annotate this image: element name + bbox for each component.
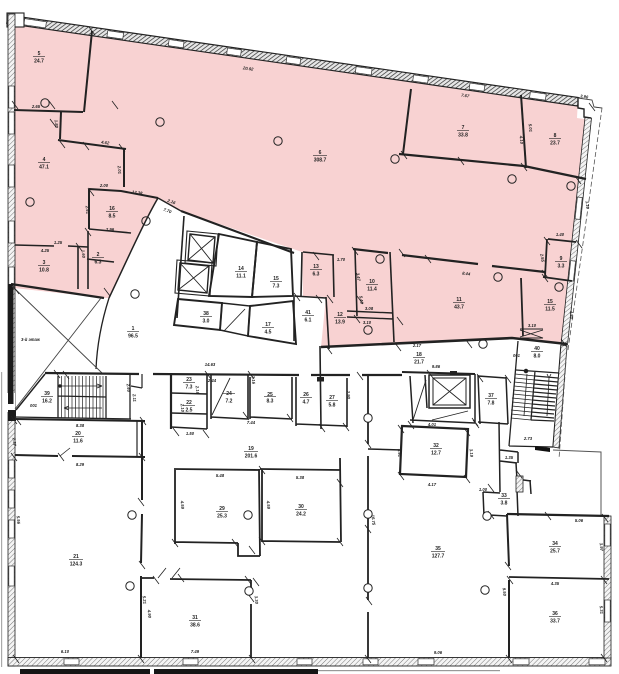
svg-text:1: 1 <box>132 326 135 332</box>
svg-text:9.86: 9.86 <box>432 364 441 369</box>
svg-text:10.8: 10.8 <box>39 268 49 274</box>
svg-text:24: 24 <box>226 391 232 397</box>
svg-text:1.80: 1.80 <box>54 120 60 129</box>
svg-text:33.7: 33.7 <box>550 619 560 625</box>
svg-text:14: 14 <box>238 266 244 272</box>
svg-text:4.80: 4.80 <box>568 310 574 320</box>
svg-text:3.08: 3.08 <box>365 306 374 311</box>
svg-text:7.3: 7.3 <box>186 385 193 391</box>
svg-text:201.6: 201.6 <box>245 454 258 460</box>
svg-text:3-й этаж: 3-й этаж <box>21 337 41 342</box>
svg-text:3.91: 3.91 <box>397 449 403 458</box>
svg-text:20: 20 <box>75 431 81 437</box>
svg-text:2.40: 2.40 <box>126 383 132 393</box>
svg-text:37: 37 <box>488 393 494 399</box>
svg-text:43.7: 43.7 <box>454 305 464 311</box>
svg-text:4.35: 4.35 <box>550 581 560 586</box>
svg-text:4.90: 4.90 <box>147 609 153 619</box>
svg-text:11.6: 11.6 <box>73 439 83 445</box>
svg-text:13.9: 13.9 <box>335 320 345 326</box>
svg-text:6: 6 <box>319 150 322 156</box>
svg-text:5.31: 5.31 <box>599 606 605 615</box>
svg-text:1.25: 1.25 <box>54 240 63 245</box>
svg-text:11.1: 11.1 <box>236 274 246 280</box>
svg-text:38.6: 38.6 <box>190 623 200 629</box>
svg-text:6.3: 6.3 <box>313 272 320 278</box>
svg-text:1.35: 1.35 <box>505 455 514 460</box>
svg-text:001: 001 <box>513 353 521 358</box>
svg-text:5: 5 <box>38 51 41 57</box>
svg-text:3.10: 3.10 <box>363 320 372 325</box>
svg-text:3.19: 3.19 <box>469 449 475 458</box>
svg-text:8.29: 8.29 <box>76 462 85 467</box>
svg-text:33: 33 <box>501 493 507 499</box>
svg-text:4.59: 4.59 <box>180 500 186 510</box>
svg-text:4.25: 4.25 <box>40 248 50 253</box>
svg-text:40: 40 <box>534 346 540 352</box>
svg-text:25.3: 25.3 <box>217 514 227 520</box>
svg-text:1.70: 1.70 <box>337 257 346 262</box>
svg-text:3.0: 3.0 <box>203 319 210 325</box>
svg-text:2.01: 2.01 <box>117 165 123 175</box>
svg-text:24.2: 24.2 <box>296 512 306 518</box>
svg-text:2.16: 2.16 <box>251 375 257 385</box>
svg-text:5.06: 5.06 <box>575 518 584 523</box>
svg-text:3.30: 3.30 <box>254 596 260 605</box>
svg-text:2.96: 2.96 <box>105 227 115 232</box>
svg-text:9.06: 9.06 <box>434 650 443 655</box>
svg-text:7.3: 7.3 <box>273 284 280 290</box>
svg-text:5.48: 5.48 <box>216 473 225 478</box>
svg-text:8.38: 8.38 <box>76 423 85 428</box>
svg-text:5.01: 5.01 <box>528 124 534 133</box>
svg-text:7.8: 7.8 <box>488 401 495 407</box>
svg-text:14.63: 14.63 <box>205 362 216 367</box>
svg-text:2.90: 2.90 <box>346 390 352 400</box>
svg-text:2.10: 2.10 <box>180 403 186 413</box>
svg-text:41: 41 <box>305 310 311 316</box>
svg-text:6.10: 6.10 <box>61 649 70 654</box>
svg-text:3.3: 3.3 <box>558 264 565 270</box>
svg-text:7: 7 <box>462 125 465 131</box>
svg-text:2.16: 2.16 <box>195 385 201 395</box>
svg-text:39: 39 <box>44 391 50 397</box>
svg-text:11: 11 <box>456 297 462 303</box>
svg-text:9.50: 9.50 <box>502 588 508 597</box>
svg-text:001: 001 <box>30 403 38 408</box>
svg-text:5.21: 5.21 <box>142 596 148 605</box>
svg-text:1.00: 1.00 <box>479 487 488 492</box>
svg-text:16.75: 16.75 <box>371 514 377 526</box>
svg-text:21: 21 <box>73 554 79 560</box>
svg-text:4.5: 4.5 <box>265 330 272 336</box>
svg-text:23: 23 <box>186 377 192 383</box>
svg-text:8.3: 8.3 <box>267 399 274 405</box>
svg-text:16: 16 <box>109 206 115 212</box>
svg-text:26: 26 <box>303 392 309 398</box>
svg-text:13: 13 <box>313 264 319 270</box>
svg-text:2.65: 2.65 <box>31 104 41 109</box>
svg-text:15: 15 <box>547 299 553 305</box>
svg-text:2.11: 2.11 <box>132 393 138 403</box>
svg-text:7.2: 7.2 <box>226 399 233 405</box>
svg-text:33.8: 33.8 <box>458 133 468 139</box>
svg-text:4.10: 4.10 <box>519 135 525 145</box>
svg-text:127.7: 127.7 <box>432 554 445 560</box>
svg-text:25: 25 <box>267 392 273 398</box>
svg-text:7.44: 7.44 <box>247 420 256 425</box>
svg-text:21.7: 21.7 <box>414 360 424 366</box>
svg-text:23.7: 23.7 <box>550 141 560 147</box>
svg-text:8.5: 8.5 <box>109 214 116 220</box>
svg-text:32: 32 <box>433 443 439 449</box>
svg-text:6.1: 6.1 <box>305 318 312 324</box>
svg-text:18: 18 <box>416 352 422 358</box>
svg-text:12: 12 <box>337 312 343 318</box>
svg-text:3.10: 3.10 <box>528 323 537 328</box>
svg-text:1.50: 1.50 <box>186 431 195 436</box>
svg-text:16.2: 16.2 <box>42 399 52 405</box>
svg-text:34: 34 <box>552 541 558 547</box>
svg-text:10: 10 <box>369 279 375 285</box>
svg-text:24.7: 24.7 <box>34 59 44 65</box>
svg-text:5.8: 5.8 <box>329 403 336 409</box>
svg-text:5.38: 5.38 <box>296 475 305 480</box>
svg-text:4.59: 4.59 <box>266 500 272 510</box>
svg-text:8.44: 8.44 <box>462 271 471 277</box>
svg-text:4.7: 4.7 <box>303 400 310 406</box>
svg-text:8: 8 <box>554 133 557 139</box>
svg-text:1.10: 1.10 <box>585 201 591 210</box>
svg-text:7.49: 7.49 <box>191 649 200 654</box>
svg-text:2.73: 2.73 <box>523 436 533 441</box>
svg-text:31: 31 <box>192 615 198 621</box>
svg-text:17: 17 <box>265 322 271 328</box>
svg-text:38: 38 <box>203 311 209 317</box>
svg-text:3.97: 3.97 <box>599 543 605 552</box>
svg-text:4.01: 4.01 <box>427 422 437 427</box>
svg-text:19: 19 <box>248 446 254 452</box>
svg-text:3.8: 3.8 <box>501 501 508 507</box>
svg-text:9: 9 <box>560 256 563 262</box>
svg-text:308.7: 308.7 <box>314 158 327 164</box>
svg-text:96.5: 96.5 <box>128 334 138 340</box>
svg-text:2.5: 2.5 <box>186 408 193 414</box>
svg-text:6.3: 6.3 <box>95 260 102 266</box>
svg-text:22: 22 <box>186 400 192 406</box>
svg-text:2: 2 <box>97 252 100 258</box>
svg-text:4: 4 <box>43 157 46 163</box>
svg-text:12.7: 12.7 <box>431 451 441 457</box>
svg-text:1.40: 1.40 <box>556 232 565 237</box>
svg-text:8.0: 8.0 <box>534 354 541 360</box>
svg-text:35: 35 <box>435 546 441 552</box>
svg-text:2.41: 2.41 <box>85 205 91 215</box>
svg-text:3: 3 <box>43 260 46 266</box>
svg-text:2.17: 2.17 <box>412 343 422 348</box>
svg-text:27: 27 <box>329 395 335 401</box>
svg-text:2.37: 2.37 <box>12 437 18 447</box>
svg-text:25.7: 25.7 <box>550 549 560 555</box>
svg-text:11.4: 11.4 <box>367 287 377 293</box>
svg-text:124.3: 124.3 <box>70 562 83 568</box>
svg-text:15: 15 <box>273 276 279 282</box>
svg-text:11.5: 11.5 <box>545 307 555 313</box>
svg-text:36: 36 <box>552 611 558 617</box>
svg-text:2.00: 2.00 <box>99 183 109 188</box>
svg-text:5.56: 5.56 <box>16 516 22 525</box>
svg-text:2.44: 2.44 <box>207 378 217 383</box>
svg-text:30: 30 <box>298 504 304 510</box>
svg-text:29: 29 <box>219 506 225 512</box>
svg-text:1.60: 1.60 <box>81 250 87 259</box>
svg-text:4.17: 4.17 <box>427 482 437 487</box>
svg-text:47.1: 47.1 <box>39 165 49 171</box>
